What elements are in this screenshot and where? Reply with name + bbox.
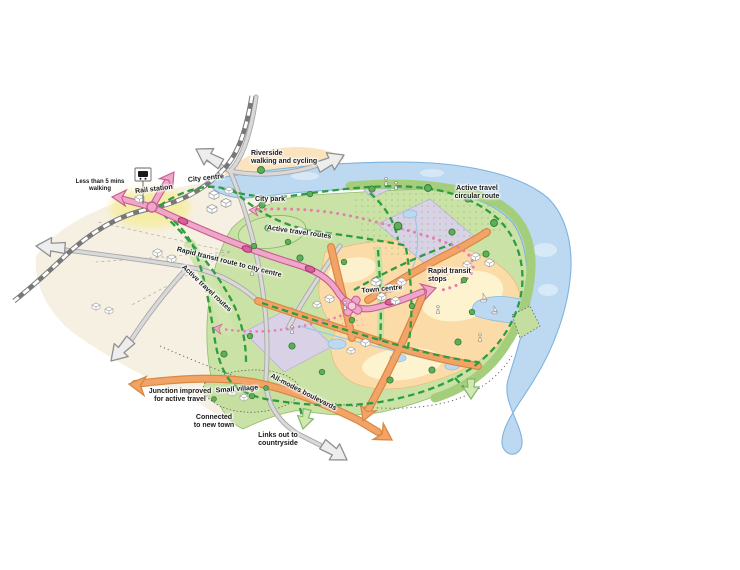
tree-icon [289,343,295,349]
person-icon [479,334,482,342]
tree-icon [285,239,291,245]
concept-map: Less than 5 mins walking Rail station Ci… [0,0,740,570]
person-icon [385,178,388,186]
person-icon [251,268,254,276]
tree-icon [425,185,432,192]
tree-icon [429,367,435,373]
tree-icon [387,377,393,383]
tree-icon [265,225,271,231]
tree-icon [455,339,461,345]
tree-icon [249,393,255,399]
tree-icon [409,303,415,309]
tree-icon [491,220,498,227]
water-highlight [533,243,557,257]
tree-icon [259,202,265,208]
road-continues-arrow-icon [318,436,353,468]
pond [403,210,417,218]
person-icon [395,182,398,190]
tree-icon [212,397,217,402]
tree-icon [221,351,227,357]
tree-icon [461,277,467,283]
water-highlight [420,169,444,177]
person-icon [344,302,347,310]
tree-icon [449,229,455,235]
tree-icon [469,309,475,315]
tree-icon [297,255,303,261]
person-icon [437,306,440,314]
tree-icon [251,243,257,249]
tree-icon [307,191,313,197]
tree-icon [264,386,269,391]
tree-icon [465,196,471,202]
tree-icon [349,317,355,323]
tree-icon [369,186,375,192]
tree-icon [483,251,489,257]
tree-icon [341,259,347,265]
tree-icon [258,167,265,174]
schematic-map-illustration [0,0,740,570]
water-highlight [538,284,558,296]
tree-icon [319,369,325,375]
tree-icon [394,222,402,230]
person-icon [291,326,294,334]
tree-icon [247,333,253,339]
rail-station-hub [147,202,157,212]
pond [328,339,346,349]
